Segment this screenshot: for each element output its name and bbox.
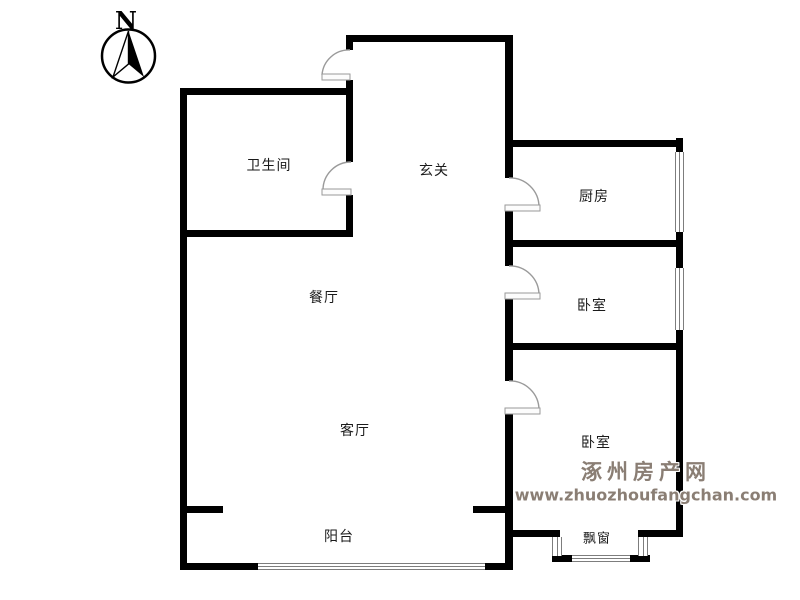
door-bedroom-bottom — [505, 381, 540, 414]
room-label-bathroom: 卫生间 — [247, 155, 292, 175]
compass-needle-west — [113, 31, 129, 77]
north-compass-icon: N — [102, 6, 155, 83]
room-label-kitchen: 厨房 — [579, 186, 609, 206]
door-bedroom-top — [505, 266, 540, 299]
room-label-living: 客厅 — [340, 420, 370, 440]
room-label-bedroom-bottom: 卧室 — [581, 432, 611, 452]
door-entrance — [322, 50, 350, 80]
room-label-hallway: 玄关 — [419, 160, 449, 180]
floor-plan: N 卫生间 玄关 厨房 餐厅 — [0, 0, 800, 600]
room-label-balcony: 阳台 — [324, 526, 354, 546]
door-and-compass-layer: N — [0, 0, 800, 600]
compass-needle-east — [129, 31, 145, 77]
room-label-dining: 餐厅 — [309, 287, 339, 307]
room-label-bedroom-top: 卧室 — [577, 295, 607, 315]
room-label-bay-window: 飘窗 — [583, 528, 611, 547]
door-bathroom — [322, 162, 351, 195]
door-kitchen — [505, 178, 540, 211]
